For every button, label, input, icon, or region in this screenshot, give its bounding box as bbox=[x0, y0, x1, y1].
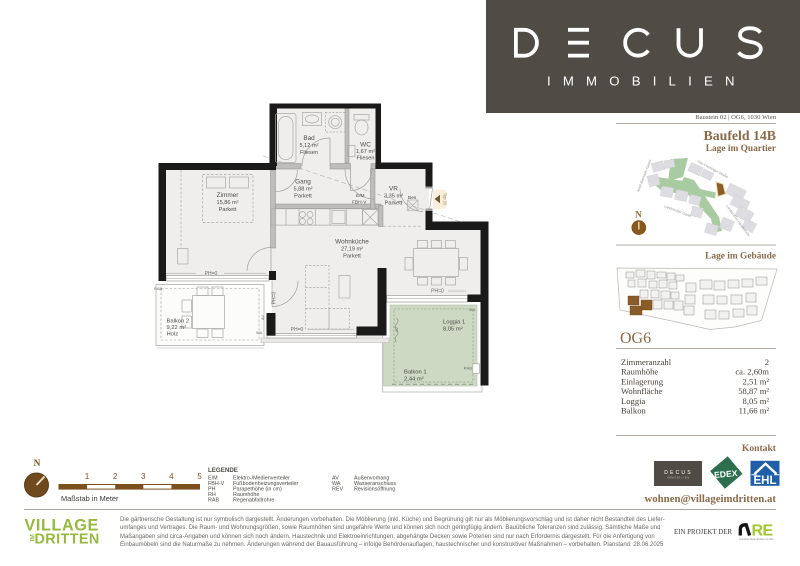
svg-text:Holz: Holz bbox=[167, 332, 179, 338]
svg-text:Zimmeranzahl: Zimmeranzahl bbox=[621, 357, 672, 367]
svg-text:Balkon 2: Balkon 2 bbox=[167, 319, 190, 325]
svg-text:PH=0: PH=0 bbox=[272, 291, 278, 304]
svg-text:Loggia: Loggia bbox=[621, 396, 646, 406]
svg-text:Baufeld 14B: Baufeld 14B bbox=[704, 128, 776, 143]
svg-text:Landstraßer Gürtel: Landstraßer Gürtel bbox=[664, 204, 692, 218]
svg-text:N: N bbox=[635, 210, 642, 220]
svg-text:EIN PROJEKT DER: EIN PROJEKT DER bbox=[674, 529, 732, 536]
svg-text:wohnen@villageimdritten.at: wohnen@villageimdritten.at bbox=[644, 493, 776, 505]
svg-text:Wohnfläche: Wohnfläche bbox=[621, 386, 662, 396]
svg-text:3,35 m²: 3,35 m² bbox=[384, 194, 403, 200]
svg-text:WC: WC bbox=[360, 142, 371, 149]
svg-text:Balkon 1: Balkon 1 bbox=[404, 370, 427, 376]
svg-text:Parkett: Parkett bbox=[294, 194, 312, 200]
svg-text:ca. 2,60m: ca. 2,60m bbox=[735, 367, 769, 377]
svg-text:11,66 m²: 11,66 m² bbox=[739, 406, 770, 416]
svg-text:FBH-V: FBH-V bbox=[352, 200, 367, 206]
svg-text:Bad: Bad bbox=[303, 135, 315, 142]
svg-text:Parkett: Parkett bbox=[219, 207, 237, 213]
svg-text:DECUS: DECUS bbox=[664, 470, 693, 476]
svg-text:Regenabfallrohre: Regenabfallrohre bbox=[233, 498, 274, 504]
svg-text:58,87 m²: 58,87 m² bbox=[738, 386, 769, 396]
svg-text:N: N bbox=[34, 459, 41, 469]
svg-text:Balkon: Balkon bbox=[621, 406, 647, 416]
svg-text:PH=0: PH=0 bbox=[431, 289, 444, 295]
svg-text:Raumhöhe: Raumhöhe bbox=[621, 367, 658, 377]
svg-text:E/M: E/M bbox=[356, 193, 365, 199]
svg-text:Austrian Real Estate GmbH: Austrian Real Estate GmbH bbox=[739, 537, 773, 541]
svg-text:REV: REV bbox=[332, 487, 343, 493]
svg-text:Wohnküche: Wohnküche bbox=[335, 239, 369, 246]
svg-text:Kontakt: Kontakt bbox=[742, 443, 777, 454]
svg-text:LEGENDE: LEGENDE bbox=[208, 467, 238, 474]
svg-text:15,86 m²: 15,86 m² bbox=[216, 200, 238, 206]
svg-text:Parkett: Parkett bbox=[343, 254, 361, 260]
svg-text:Lage im Quartier: Lage im Quartier bbox=[706, 144, 776, 154]
svg-text:PH=0: PH=0 bbox=[291, 327, 304, 333]
svg-text:2: 2 bbox=[113, 472, 117, 481]
svg-text:2,44 m²: 2,44 m² bbox=[404, 377, 424, 383]
svg-text:1,67 m²: 1,67 m² bbox=[356, 149, 375, 155]
svg-text:Fliesen: Fliesen bbox=[300, 150, 318, 156]
svg-text:EDEX: EDEX bbox=[714, 468, 738, 480]
svg-text:Top 26: Top 26 bbox=[443, 193, 448, 206]
svg-text:IMMOBILIEN: IMMOBILIEN bbox=[667, 477, 690, 480]
svg-text:Lage im Gebäude: Lage im Gebäude bbox=[705, 252, 776, 262]
svg-text:8,05 m²: 8,05 m² bbox=[743, 396, 770, 406]
svg-text:AV: AV bbox=[260, 315, 265, 320]
svg-text:3: 3 bbox=[141, 472, 145, 481]
svg-text:5,12 m²: 5,12 m² bbox=[300, 143, 319, 149]
svg-text:Revisionsöffnung: Revisionsöffnung bbox=[354, 487, 395, 493]
svg-text:VR: VR bbox=[389, 186, 398, 193]
svg-text:2: 2 bbox=[765, 357, 769, 367]
svg-text:9,22 m²: 9,22 m² bbox=[167, 325, 187, 331]
svg-text:Zimmer: Zimmer bbox=[217, 192, 240, 199]
svg-text:Parkett: Parkett bbox=[385, 201, 403, 207]
svg-text:WA: WA bbox=[469, 307, 476, 312]
svg-text:RAB: RAB bbox=[208, 498, 219, 504]
svg-text:1: 1 bbox=[85, 472, 89, 481]
svg-text:RAB: RAB bbox=[464, 366, 473, 371]
svg-text:27,19 m²: 27,19 m² bbox=[341, 247, 363, 253]
svg-text:PH=0: PH=0 bbox=[205, 271, 218, 277]
svg-text:Loggia 1: Loggia 1 bbox=[443, 320, 465, 326]
svg-text:EHL: EHL bbox=[754, 475, 777, 487]
svg-text:5,88 m²: 5,88 m² bbox=[294, 187, 313, 193]
svg-text:DRITTEN: DRITTEN bbox=[35, 531, 100, 547]
svg-text:Einlagerung: Einlagerung bbox=[621, 376, 664, 386]
svg-text:4: 4 bbox=[169, 472, 174, 481]
svg-text:Maßstab in Meter: Maßstab in Meter bbox=[61, 494, 119, 503]
svg-text:Baustein 02 | OG6, 1030 Wien: Baustein 02 | OG6, 1030 Wien bbox=[695, 114, 776, 121]
svg-text:OG6: OG6 bbox=[620, 330, 651, 347]
svg-text:RAB: RAB bbox=[154, 286, 163, 291]
svg-text:Gang: Gang bbox=[295, 179, 311, 186]
svg-text:2,51 m²: 2,51 m² bbox=[743, 376, 770, 386]
svg-text:5: 5 bbox=[197, 472, 202, 481]
svg-text:AV: AV bbox=[394, 327, 399, 332]
svg-text:8,05 m²: 8,05 m² bbox=[443, 327, 463, 333]
svg-text:Fliesen: Fliesen bbox=[356, 156, 374, 162]
svg-text:WA.: WA. bbox=[256, 330, 263, 335]
